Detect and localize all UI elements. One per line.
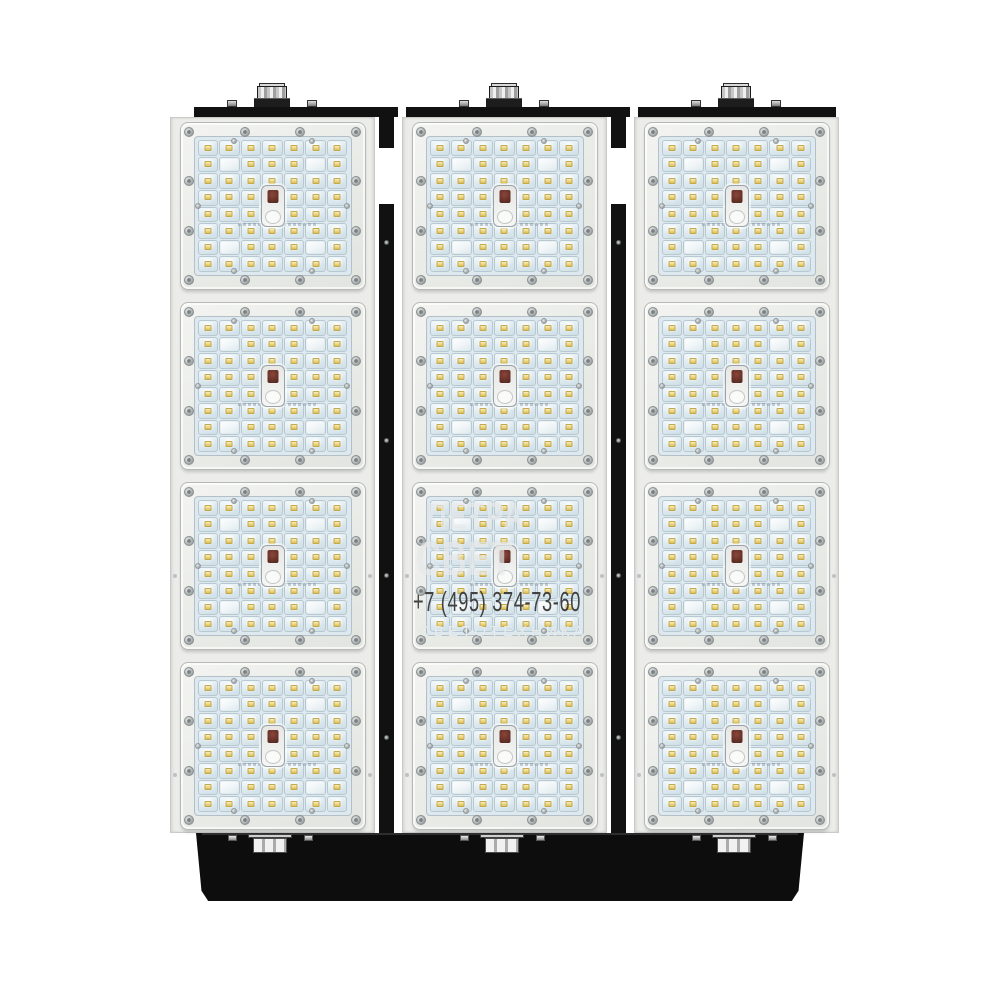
plate-screw <box>695 678 701 684</box>
led-cell <box>705 780 726 796</box>
led-module <box>180 302 366 470</box>
led-cell <box>430 337 451 353</box>
module-screw <box>351 487 361 497</box>
led-cell <box>537 207 558 223</box>
module-screw <box>704 635 714 645</box>
rivet <box>637 773 641 777</box>
led-cell <box>705 370 726 386</box>
led-cell <box>284 337 305 353</box>
module-screw <box>416 226 426 236</box>
blank-cell <box>219 697 240 713</box>
blank-cell <box>537 337 558 353</box>
module-screw <box>184 586 194 596</box>
led-cell <box>516 207 537 223</box>
led-cell <box>430 140 451 156</box>
led-cell <box>769 173 790 189</box>
led-cell <box>516 157 537 173</box>
led-cell <box>241 747 262 763</box>
led-cell <box>262 697 283 713</box>
led-cell <box>791 353 812 369</box>
led-cell <box>327 517 348 533</box>
led-cell <box>284 697 305 713</box>
led-cell <box>537 353 558 369</box>
blank-cell <box>219 157 240 173</box>
plate-screw <box>309 268 315 274</box>
led-cell <box>219 533 240 549</box>
led-cell <box>705 173 726 189</box>
led-cell <box>430 713 451 729</box>
led-cell <box>198 353 219 369</box>
led-cell <box>305 173 326 189</box>
led-cell <box>241 533 262 549</box>
led-cell <box>683 403 704 419</box>
led-cell <box>262 500 283 516</box>
led-cell <box>219 763 240 779</box>
led-cell <box>769 747 790 763</box>
plate-screw <box>541 808 547 814</box>
module-screw <box>295 487 305 497</box>
led-cell <box>241 337 262 353</box>
led-cell <box>327 713 348 729</box>
module-screw <box>815 455 825 465</box>
module-screw <box>704 275 714 285</box>
led-cell <box>662 747 683 763</box>
module-screw <box>815 716 825 726</box>
led-cell <box>559 780 580 796</box>
led-cell <box>284 500 305 516</box>
cable-gland-bottom <box>717 838 751 853</box>
led-cell <box>219 500 240 516</box>
led-cell <box>559 320 580 336</box>
plate-screw <box>231 498 237 504</box>
center-lens-element <box>725 725 749 767</box>
module-screw <box>583 766 593 776</box>
led-cell <box>198 567 219 583</box>
led-cell <box>791 173 812 189</box>
module-screw <box>759 275 769 285</box>
bolt <box>460 835 469 841</box>
module-screw <box>351 226 361 236</box>
led-cell <box>327 140 348 156</box>
plate-screw <box>427 563 433 569</box>
plate-screw <box>541 318 547 324</box>
led-cell <box>284 550 305 566</box>
led-cell <box>198 780 219 796</box>
led-cell <box>662 173 683 189</box>
led-cell <box>284 517 305 533</box>
led-cell <box>683 713 704 729</box>
module-screw <box>351 766 361 776</box>
blank-cell <box>451 157 472 173</box>
rivet <box>173 773 177 777</box>
module-screw <box>648 275 658 285</box>
module-screw <box>416 127 426 137</box>
led-cell <box>305 353 326 369</box>
led-cell <box>262 320 283 336</box>
led-cell <box>494 697 515 713</box>
module-screw <box>184 667 194 677</box>
plate-screw <box>344 203 350 209</box>
led-cell <box>284 747 305 763</box>
led-cell <box>430 320 451 336</box>
led-cell <box>769 533 790 549</box>
led-cell <box>494 500 515 516</box>
led-cell <box>473 420 494 436</box>
led-cell <box>516 697 537 713</box>
blank-cell <box>683 157 704 173</box>
led-cell <box>451 353 472 369</box>
blank-cell <box>769 240 790 256</box>
inter-column-strip <box>611 117 626 833</box>
led-cell <box>748 730 769 746</box>
led-cell <box>284 320 305 336</box>
module-screw <box>184 406 194 416</box>
module-screw <box>416 356 426 366</box>
led-cell <box>473 436 494 452</box>
led-cell <box>683 616 704 632</box>
led-cell <box>769 190 790 206</box>
led-module <box>180 662 366 830</box>
led-cell <box>559 567 580 583</box>
module-screw <box>295 127 305 137</box>
led-cell <box>748 157 769 173</box>
bolt <box>691 100 701 107</box>
led-cell <box>537 747 558 763</box>
led-cell <box>494 680 515 696</box>
led-cell <box>430 600 451 616</box>
led-cell <box>791 600 812 616</box>
led-cell <box>284 157 305 173</box>
led-cell <box>683 500 704 516</box>
rivet <box>832 773 836 777</box>
led-cell <box>451 370 472 386</box>
led-cell <box>559 713 580 729</box>
column-panel <box>402 117 607 833</box>
led-cell <box>748 550 769 566</box>
led-cell <box>662 320 683 336</box>
led-cell <box>559 796 580 812</box>
blank-cell <box>537 697 558 713</box>
led-cell <box>198 616 219 632</box>
led-cell <box>473 780 494 796</box>
module-screw <box>351 127 361 137</box>
led-cell <box>430 796 451 812</box>
module-screw <box>583 487 593 497</box>
module-screw <box>648 406 658 416</box>
led-cell <box>559 403 580 419</box>
module-screw <box>704 667 714 677</box>
plate-screw <box>541 268 547 274</box>
plate-screw <box>195 563 201 569</box>
led-cell <box>662 763 683 779</box>
module-screw <box>351 586 361 596</box>
led-cell <box>559 616 580 632</box>
blank-cell <box>683 240 704 256</box>
plate-screw <box>427 743 433 749</box>
led-cell <box>791 796 812 812</box>
led-cell <box>241 780 262 796</box>
led-cell <box>705 796 726 812</box>
module-screw <box>583 635 593 645</box>
led-cell <box>284 780 305 796</box>
led-cell <box>791 436 812 452</box>
led-cell <box>430 387 451 403</box>
module-screw <box>240 127 250 137</box>
led-cell <box>748 337 769 353</box>
led-cell <box>537 387 558 403</box>
module-screw <box>416 275 426 285</box>
module-screw <box>472 635 482 645</box>
led-module <box>412 122 598 290</box>
module-screw <box>295 275 305 285</box>
led-cell <box>748 567 769 583</box>
module-screw <box>184 766 194 776</box>
led-cell <box>198 403 219 419</box>
led-cell <box>241 697 262 713</box>
led-cell <box>516 796 537 812</box>
led-cell <box>327 420 348 436</box>
led-cell <box>473 500 494 516</box>
module-screw <box>351 356 361 366</box>
led-cell <box>198 583 219 599</box>
strip-gap <box>609 148 628 204</box>
led-cell <box>516 533 537 549</box>
rivet <box>384 573 389 578</box>
plate-screw <box>695 498 701 504</box>
led-cell <box>705 387 726 403</box>
led-cell <box>748 697 769 713</box>
inter-column-strip <box>379 117 394 833</box>
module-screw <box>759 487 769 497</box>
led-module <box>412 482 598 650</box>
led-cell <box>516 190 537 206</box>
led-cell <box>683 796 704 812</box>
led-cell <box>516 616 537 632</box>
bolt <box>304 835 313 841</box>
led-cell <box>284 796 305 812</box>
led-cell <box>241 517 262 533</box>
blank-cell <box>451 517 472 533</box>
module-screw <box>184 176 194 186</box>
module-screw <box>527 815 537 825</box>
plate-screw <box>344 743 350 749</box>
led-lens-plate <box>426 136 584 276</box>
module-screw <box>583 536 593 546</box>
led-cell <box>726 500 747 516</box>
led-module <box>644 662 830 830</box>
led-cell <box>537 730 558 746</box>
led-cell <box>262 157 283 173</box>
led-cell <box>791 583 812 599</box>
module-screw <box>815 127 825 137</box>
led-lens-plate <box>658 676 816 816</box>
led-cell <box>241 420 262 436</box>
led-cell <box>219 353 240 369</box>
plate-screw <box>309 808 315 814</box>
led-cell <box>198 747 219 763</box>
blank-cell <box>305 157 326 173</box>
module-screw <box>583 127 593 137</box>
blank-cell <box>451 697 472 713</box>
led-cell <box>284 370 305 386</box>
led-cell <box>705 697 726 713</box>
led-cell <box>748 420 769 436</box>
rivet <box>384 735 389 740</box>
led-cell <box>430 403 451 419</box>
led-cell <box>451 533 472 549</box>
led-cell <box>305 713 326 729</box>
led-cell <box>516 337 537 353</box>
led-cell <box>241 550 262 566</box>
led-cell <box>516 730 537 746</box>
module-screw <box>648 586 658 596</box>
led-cell <box>430 780 451 796</box>
led-cell <box>516 436 537 452</box>
led-cell <box>219 370 240 386</box>
plate-screw <box>541 498 547 504</box>
blank-cell <box>683 780 704 796</box>
led-cell <box>327 337 348 353</box>
module-screw <box>527 275 537 285</box>
cable-gland-top <box>486 83 522 107</box>
led-cell <box>748 796 769 812</box>
led-cell <box>305 550 326 566</box>
led-cell <box>726 600 747 616</box>
module-screw <box>295 307 305 317</box>
led-cell <box>219 550 240 566</box>
plate-screw <box>309 678 315 684</box>
led-cell <box>198 320 219 336</box>
led-cell <box>473 616 494 632</box>
led-cell <box>305 370 326 386</box>
led-cell <box>451 223 472 239</box>
led-cell <box>327 207 348 223</box>
led-cell <box>327 256 348 272</box>
led-cell <box>305 533 326 549</box>
led-cell <box>537 190 558 206</box>
led-cell <box>662 353 683 369</box>
module-screw <box>351 716 361 726</box>
module-screw <box>416 307 426 317</box>
module-screw <box>648 455 658 465</box>
led-cell <box>769 370 790 386</box>
led-cell <box>198 517 219 533</box>
plate-screw <box>231 138 237 144</box>
led-cell <box>662 796 683 812</box>
module-screw <box>759 667 769 677</box>
led-cell <box>662 583 683 599</box>
led-lens-plate <box>194 676 352 816</box>
plate-screw <box>541 678 547 684</box>
led-cell <box>241 387 262 403</box>
led-cell <box>791 140 812 156</box>
led-cell <box>705 500 726 516</box>
led-cell <box>705 533 726 549</box>
led-cell <box>683 583 704 599</box>
led-cell <box>537 533 558 549</box>
led-cell <box>559 240 580 256</box>
led-cell <box>791 763 812 779</box>
led-cell <box>305 730 326 746</box>
led-cell <box>430 173 451 189</box>
led-cell <box>683 436 704 452</box>
module-screw <box>351 667 361 677</box>
led-cell <box>748 517 769 533</box>
led-cell <box>219 403 240 419</box>
bolt <box>692 835 701 841</box>
led-cell <box>683 207 704 223</box>
led-cell <box>284 420 305 436</box>
led-lens-plate <box>426 496 584 636</box>
led-cell <box>473 387 494 403</box>
plate-screw <box>541 628 547 634</box>
blank-cell <box>537 780 558 796</box>
led-cell <box>305 207 326 223</box>
plate-screw <box>231 268 237 274</box>
module-screw <box>240 667 250 677</box>
led-cell <box>327 436 348 452</box>
led-cell <box>705 320 726 336</box>
plate-screw <box>463 448 469 454</box>
led-cell <box>494 256 515 272</box>
module-screw <box>648 716 658 726</box>
rivet <box>384 438 389 443</box>
led-cell <box>284 387 305 403</box>
led-cell <box>262 256 283 272</box>
led-cell <box>705 140 726 156</box>
led-cell <box>726 796 747 812</box>
led-cell <box>327 567 348 583</box>
led-cell <box>791 500 812 516</box>
led-cell <box>516 320 537 336</box>
led-cell <box>662 567 683 583</box>
led-cell <box>327 500 348 516</box>
module-screw <box>583 815 593 825</box>
led-cell <box>494 600 515 616</box>
led-cell <box>219 583 240 599</box>
column-panel <box>170 117 375 833</box>
plate-screw <box>695 628 701 634</box>
plate-screw <box>576 203 582 209</box>
module-screw <box>295 667 305 677</box>
module-screw <box>416 536 426 546</box>
plate-screw <box>309 138 315 144</box>
led-cell <box>430 223 451 239</box>
led-cell <box>705 567 726 583</box>
module-screw <box>704 307 714 317</box>
led-cell <box>284 600 305 616</box>
led-cell <box>494 517 515 533</box>
module-screw <box>815 226 825 236</box>
plate-screw <box>773 498 779 504</box>
led-cell <box>791 207 812 223</box>
led-cell <box>726 337 747 353</box>
led-cell <box>451 567 472 583</box>
led-cell <box>726 697 747 713</box>
led-cell <box>327 763 348 779</box>
plate-screw <box>231 808 237 814</box>
blank-cell <box>769 780 790 796</box>
plate-screw <box>773 318 779 324</box>
led-cell <box>559 697 580 713</box>
led-cell <box>748 190 769 206</box>
cable-gland-flange <box>254 98 290 107</box>
led-cell <box>726 157 747 173</box>
bolt <box>536 835 545 841</box>
led-lens-plate <box>426 316 584 456</box>
blank-cell <box>305 600 326 616</box>
led-cell <box>241 173 262 189</box>
